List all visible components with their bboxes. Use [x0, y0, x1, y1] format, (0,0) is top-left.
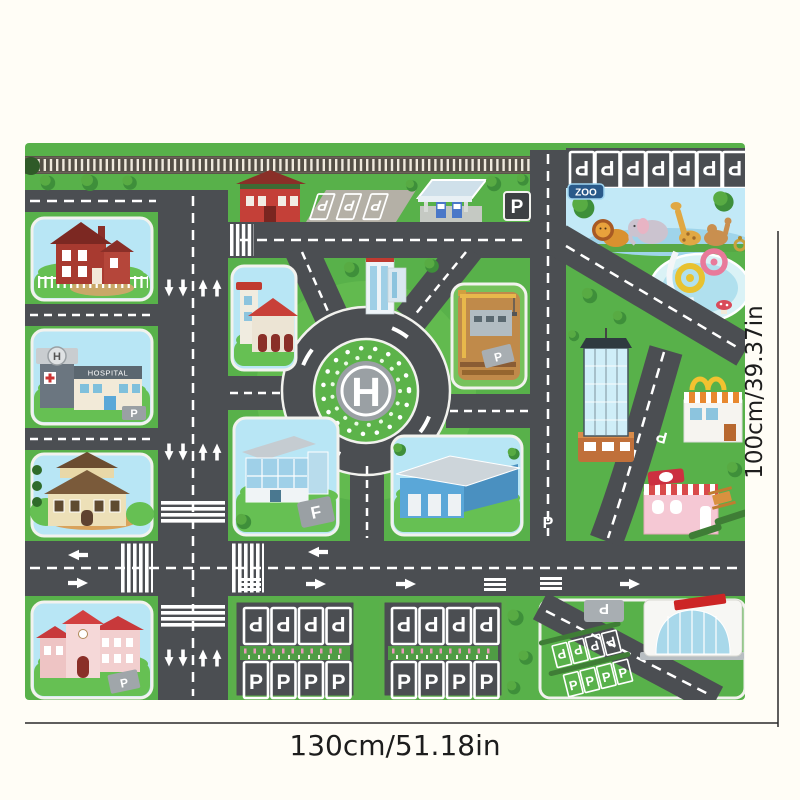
- parking-lot-left: [234, 600, 356, 698]
- glass-tower: [578, 328, 634, 462]
- mall-parking-pad: P: [584, 600, 624, 622]
- hospital-block: H HOSPITAL P: [32, 330, 152, 424]
- mansion-block: [30, 452, 154, 536]
- parking-sign: P: [504, 192, 530, 220]
- red-house-block: [32, 218, 152, 300]
- play-mat-photo: P: [0, 0, 800, 800]
- parking-lot-right: [382, 600, 504, 698]
- zoo-area: ZOO: [566, 148, 750, 256]
- zoo-sign-label: ZOO: [575, 188, 597, 199]
- zoo-sign: ZOO: [568, 184, 604, 199]
- mall-building: [640, 593, 744, 660]
- fire-station-block: [232, 266, 298, 370]
- helipad-letter: H: [351, 369, 381, 415]
- road-parking-marking: P: [543, 515, 554, 532]
- hospital-parking-marking: P: [122, 406, 146, 420]
- svg-text:P: P: [130, 408, 137, 420]
- hospital-roof-letter: H: [53, 351, 61, 363]
- play-mat: ZOO: [22, 143, 750, 701]
- school-block: P: [32, 602, 152, 698]
- construction-site-block: P: [452, 284, 526, 388]
- width-dimension-label: 130cm/51.18in: [289, 729, 500, 762]
- warehouse-block: [392, 436, 522, 535]
- glass-office-block: F: [234, 418, 338, 535]
- svg-text:P: P: [511, 197, 524, 218]
- svg-text:P: P: [599, 600, 609, 617]
- hospital-sign: HOSPITAL: [88, 369, 129, 378]
- railroad-track: [22, 156, 545, 175]
- height-dimension-label: 100cm/39.37in: [742, 305, 768, 479]
- product-photo: P: [0, 0, 800, 800]
